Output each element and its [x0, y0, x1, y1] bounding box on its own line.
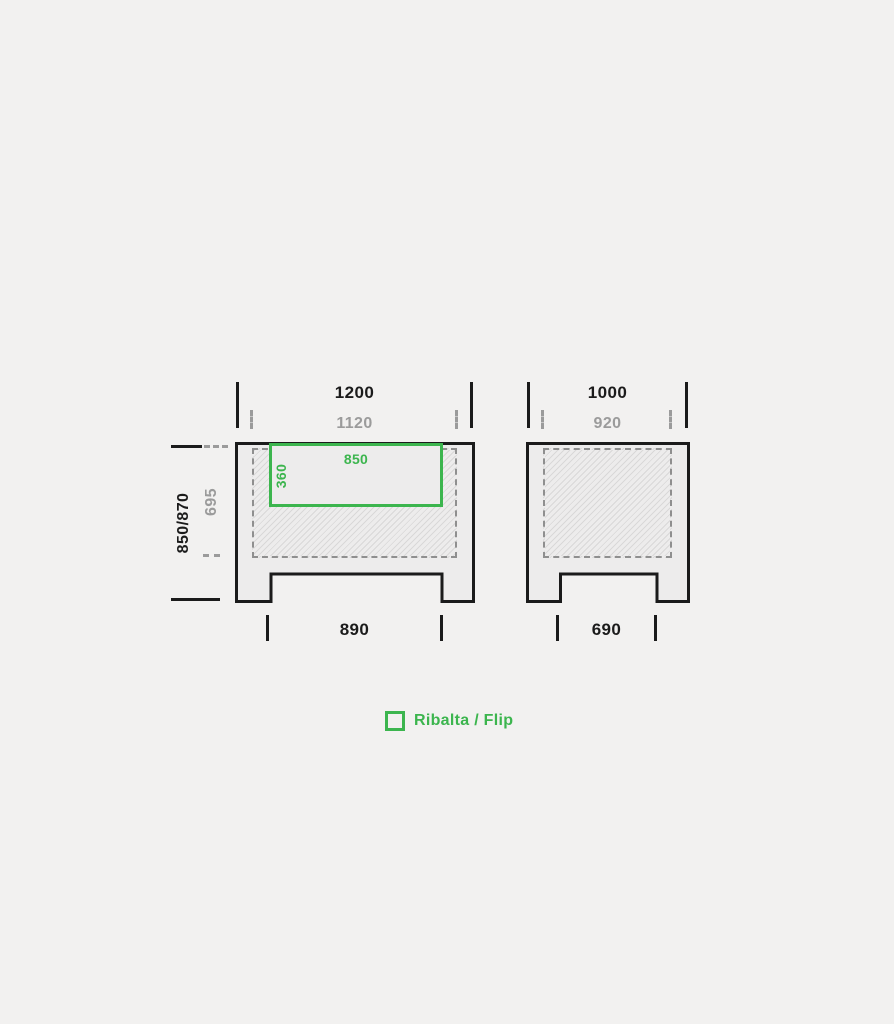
front-height-dash-top: [204, 445, 228, 448]
front-flip-height-label: 360: [273, 464, 289, 489]
side-outer-width-label: 1000: [527, 383, 688, 403]
dimension-diagram: 1200 1120 850 360 850/870 695 890 1000: [0, 0, 894, 1024]
front-flip-width-label: 850: [269, 451, 443, 467]
front-inner-width-label: 1120: [236, 415, 473, 433]
front-height-line-top: [171, 445, 202, 448]
front-inner-height-label: 695: [203, 488, 221, 516]
front-outer-width-label: 1200: [236, 383, 473, 403]
side-hatched-area: [543, 448, 672, 558]
front-leg-span-label: 890: [266, 620, 443, 640]
flip-legend-swatch-icon: [385, 711, 405, 731]
flip-legend-label: Ribalta / Flip: [414, 711, 513, 731]
side-leg-span-label: 690: [556, 620, 657, 640]
front-inner-height-dash-bottom: [203, 554, 220, 557]
side-inner-width-label: 920: [527, 415, 688, 433]
front-height-line-bottom: [171, 598, 220, 601]
front-height-label: 850/870: [175, 493, 193, 554]
